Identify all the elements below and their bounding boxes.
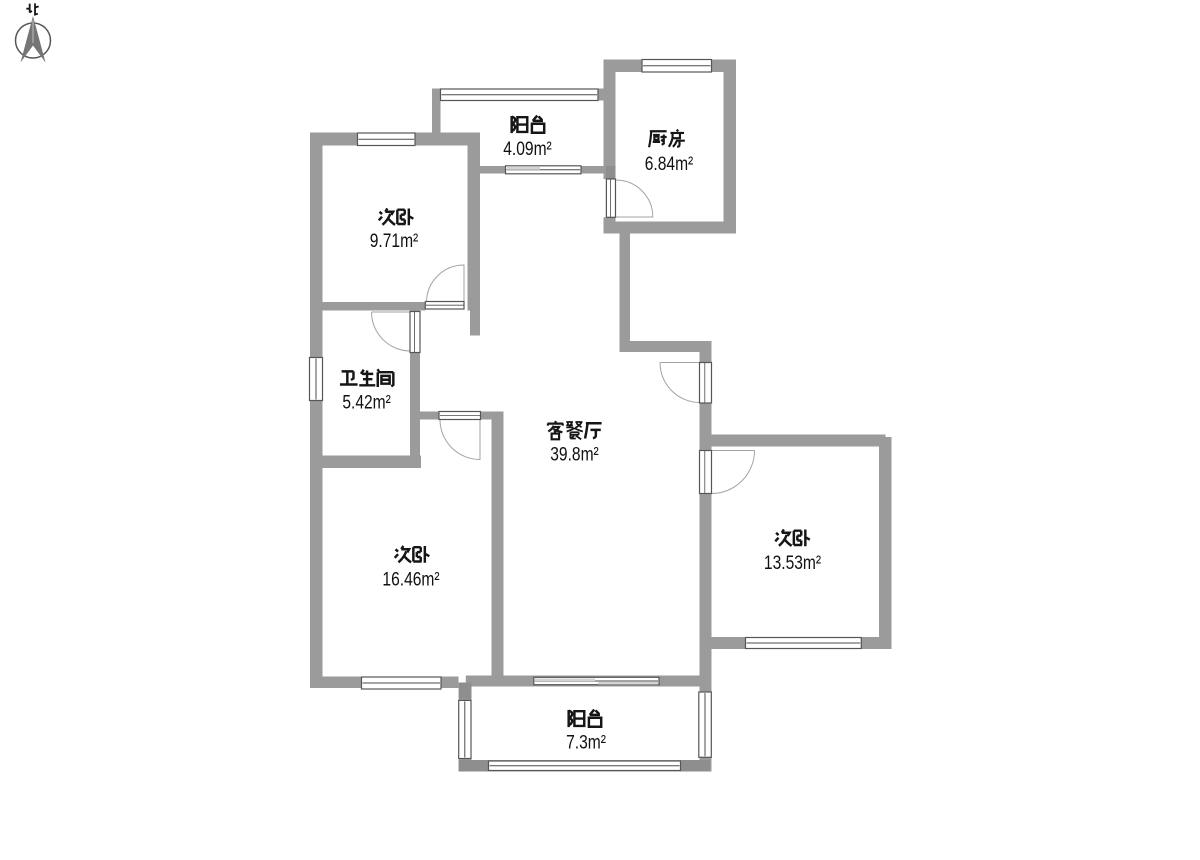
svg-text:7.3m²: 7.3m² <box>566 731 606 753</box>
svg-text:6.84m²: 6.84m² <box>645 152 694 174</box>
svg-text:4.09m²: 4.09m² <box>503 137 552 159</box>
svg-text:39.8m²: 39.8m² <box>550 443 599 465</box>
svg-text:16.46m²: 16.46m² <box>382 568 439 590</box>
svg-text:9.71m²: 9.71m² <box>370 229 419 251</box>
svg-text:13.53m²: 13.53m² <box>764 551 821 573</box>
svg-text:5.42m²: 5.42m² <box>342 391 391 413</box>
